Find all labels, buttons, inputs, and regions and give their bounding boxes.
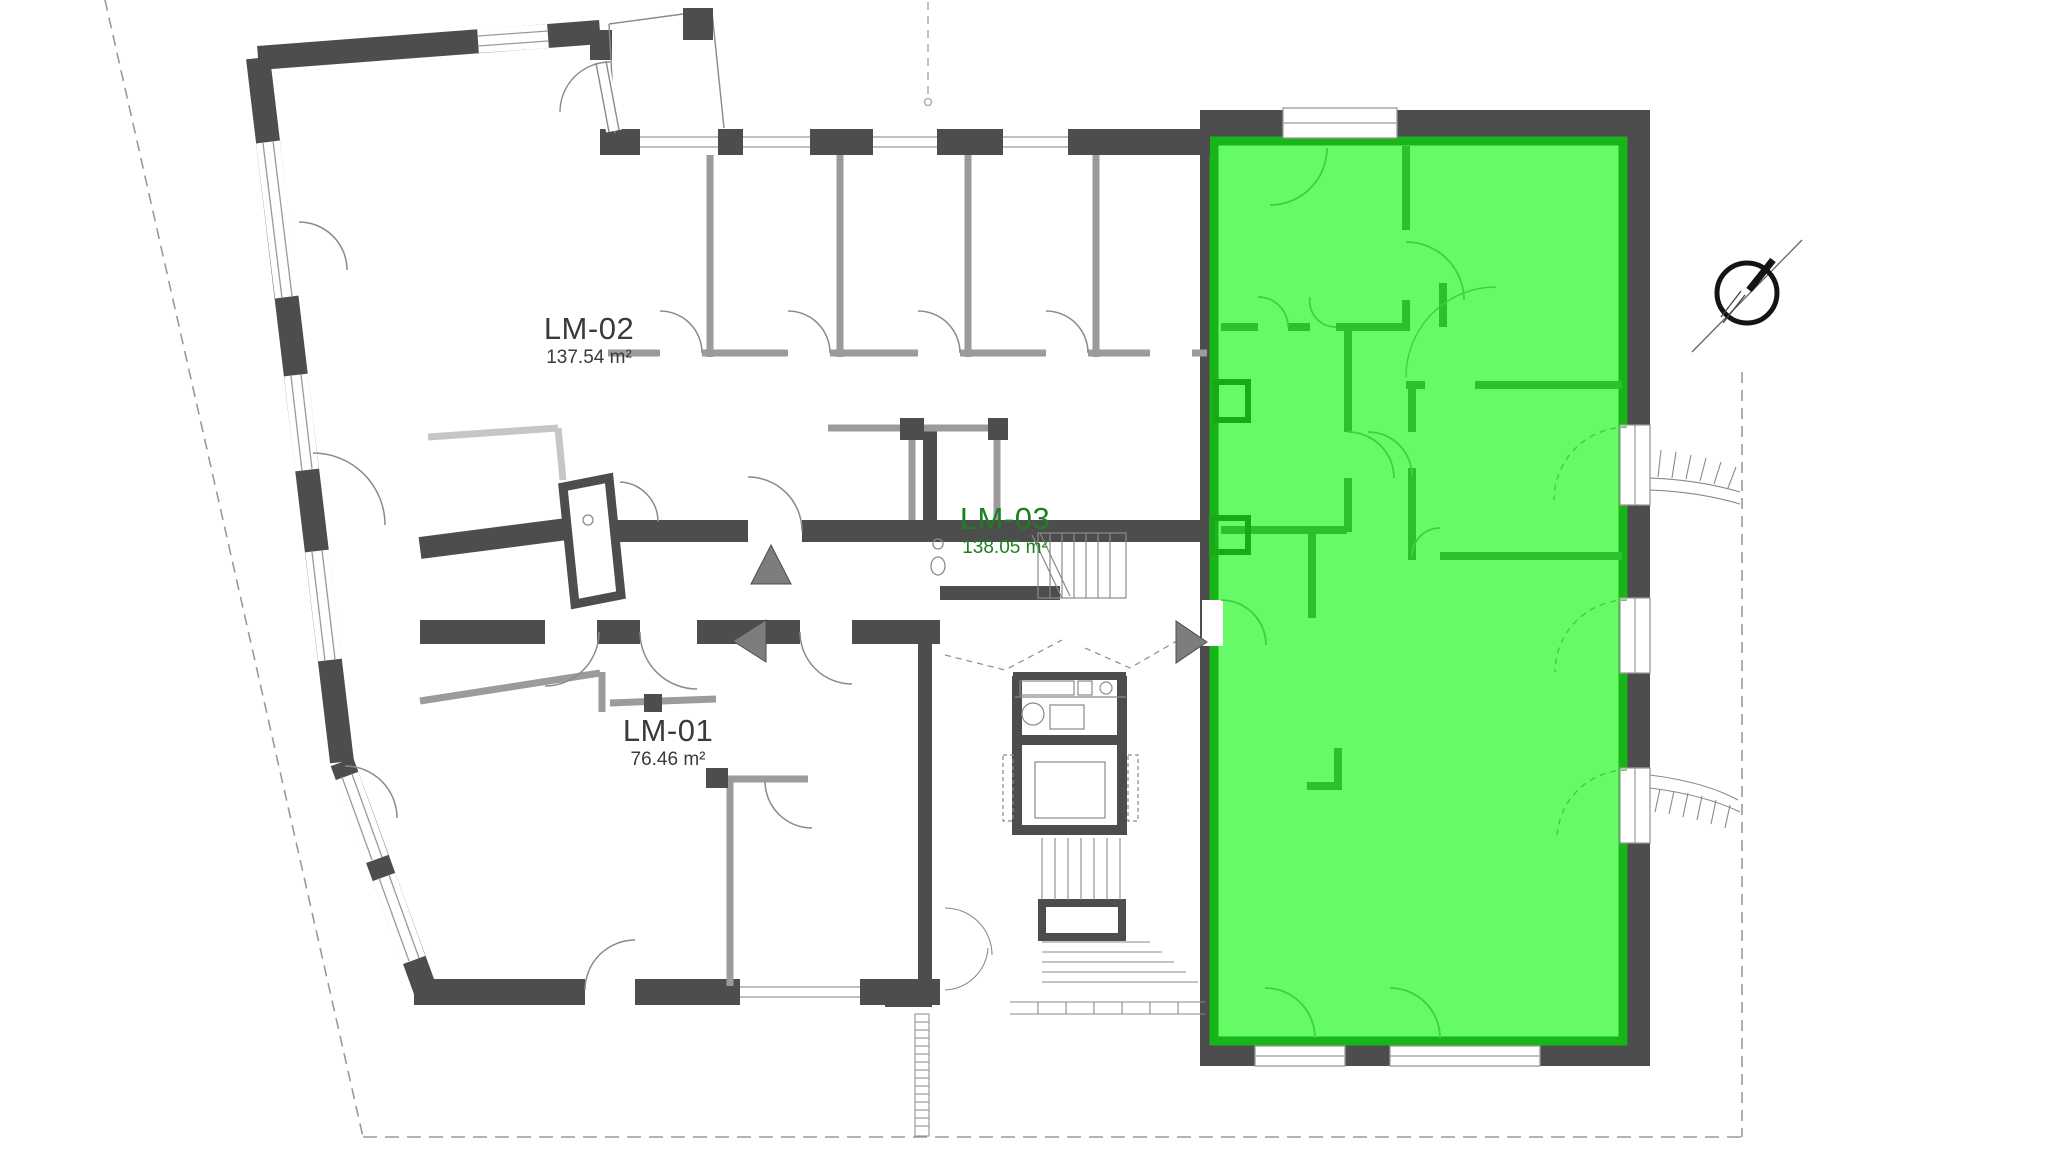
unit-lm01-hotspot[interactable] (340, 660, 925, 985)
floor-plan-drawing (0, 0, 2048, 1151)
balcony-pillar (683, 8, 713, 40)
unit-lm03-hotspot[interactable] (1210, 137, 1627, 1045)
arrow-up-icon (751, 545, 791, 584)
entrance-path (915, 1014, 929, 1136)
right-balconies (1650, 450, 1740, 828)
plan-direction-arrows (733, 545, 1207, 663)
north-compass-icon (1692, 240, 1802, 352)
unit-lm02-hotspot[interactable] (262, 40, 1205, 545)
floor-plan-canvas: LM-02 137.54 m² LM-01 76.46 m² LM-03 138… (0, 0, 2048, 1151)
